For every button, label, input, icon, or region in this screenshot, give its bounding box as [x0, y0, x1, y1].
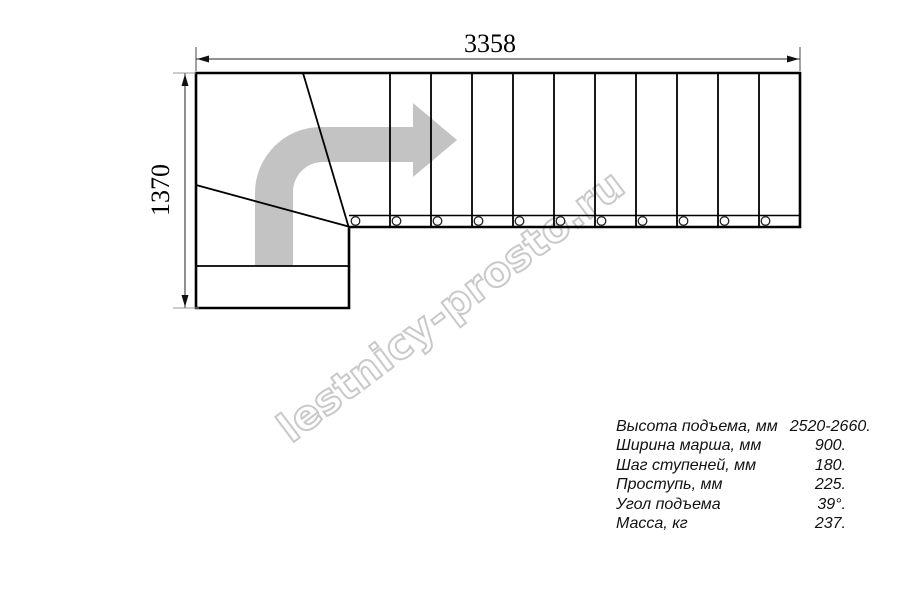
dimension-height-value: 1370: [146, 164, 175, 216]
spec-label: Проступь, мм: [616, 475, 722, 494]
dim-arrow-right: [787, 56, 799, 63]
specs-table: Высота подъема, мм2520-2660.Ширина марша…: [616, 417, 846, 533]
dimension-width-value: 3358: [464, 29, 516, 58]
spec-value: 225.: [803, 475, 846, 494]
baluster-circle: [556, 217, 565, 226]
spec-row: Шаг ступеней, мм180.: [616, 456, 846, 475]
baluster-circle: [761, 217, 770, 226]
dimension-height: 1370: [146, 73, 199, 308]
baluster-circle: [638, 217, 647, 226]
baluster-circle: [433, 217, 442, 226]
baluster-circle: [392, 217, 401, 226]
direction-arrow: [255, 103, 457, 266]
spec-value: 39°.: [805, 495, 846, 514]
baluster-circle: [679, 217, 688, 226]
baluster-circle: [474, 217, 483, 226]
dim-arrow-left: [197, 56, 209, 63]
dim-arrow-up: [182, 74, 189, 86]
spec-value: 180.: [803, 456, 846, 475]
spec-value: 237.: [803, 514, 846, 533]
baluster-circle: [720, 217, 729, 226]
baluster-circle: [597, 217, 606, 226]
spec-row: Высота подъема, мм2520-2660.: [616, 417, 846, 436]
spec-row: Проступь, мм225.: [616, 475, 846, 494]
dim-arrow-down: [182, 295, 189, 307]
spec-label: Угол подъема: [616, 495, 721, 514]
baluster-circle: [515, 217, 524, 226]
baluster-circle: [351, 217, 360, 226]
baluster-circles: [351, 217, 770, 226]
spec-row: Ширина марша, мм900.: [616, 436, 846, 455]
spec-label: Высота подъема, мм: [616, 417, 778, 436]
spec-label: Масса, кг: [616, 514, 688, 533]
spec-label: Шаг ступеней, мм: [616, 456, 756, 475]
spec-row: Угол подъема39°.: [616, 495, 846, 514]
spec-value: 2520-2660.: [778, 417, 871, 436]
stair-plan-canvas: lestnicy-prosto.ru 3358: [0, 0, 900, 600]
dimension-width: 3358: [196, 29, 800, 71]
watermark-text: lestnicy-prosto.ru: [268, 160, 633, 452]
spec-value: 900.: [803, 436, 846, 455]
spec-label: Ширина марша, мм: [616, 436, 761, 455]
spec-row: Масса, кг237.: [616, 514, 846, 533]
